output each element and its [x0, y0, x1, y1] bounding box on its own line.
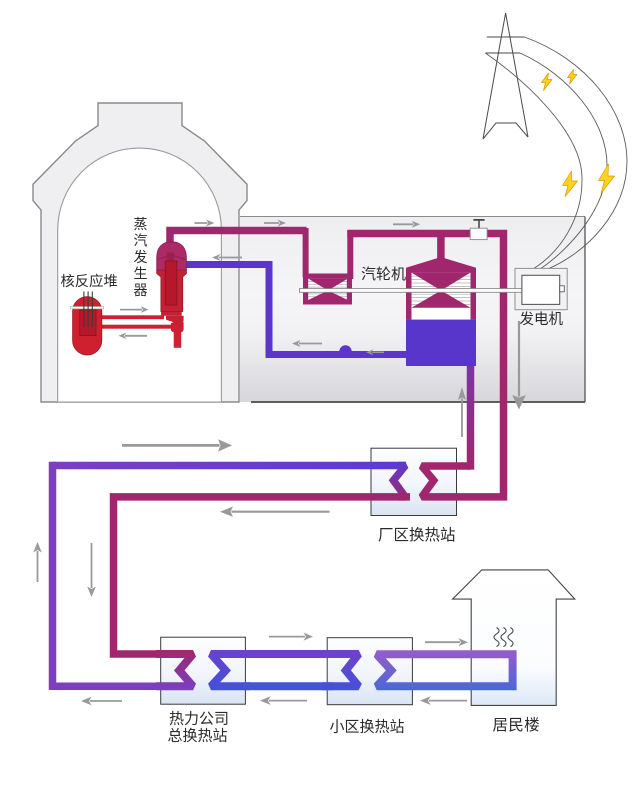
- svg-text:汽轮机: 汽轮机: [361, 266, 406, 283]
- svg-text:小区换热站: 小区换热站: [330, 719, 405, 736]
- svg-text:发电机: 发电机: [520, 311, 564, 328]
- svg-text:总换热站: 总换热站: [168, 728, 228, 745]
- svg-text:汽: 汽: [134, 233, 148, 249]
- svg-text:厂区换热站: 厂区换热站: [378, 526, 456, 544]
- svg-text:热力公司: 热力公司: [169, 711, 229, 728]
- svg-text:发: 发: [134, 249, 148, 265]
- svg-text:生: 生: [134, 266, 148, 282]
- svg-text:器: 器: [134, 282, 148, 298]
- svg-text:蒸: 蒸: [134, 216, 148, 232]
- svg-text:核反应堆: 核反应堆: [61, 272, 118, 290]
- svg-text:居民楼: 居民楼: [493, 716, 540, 734]
